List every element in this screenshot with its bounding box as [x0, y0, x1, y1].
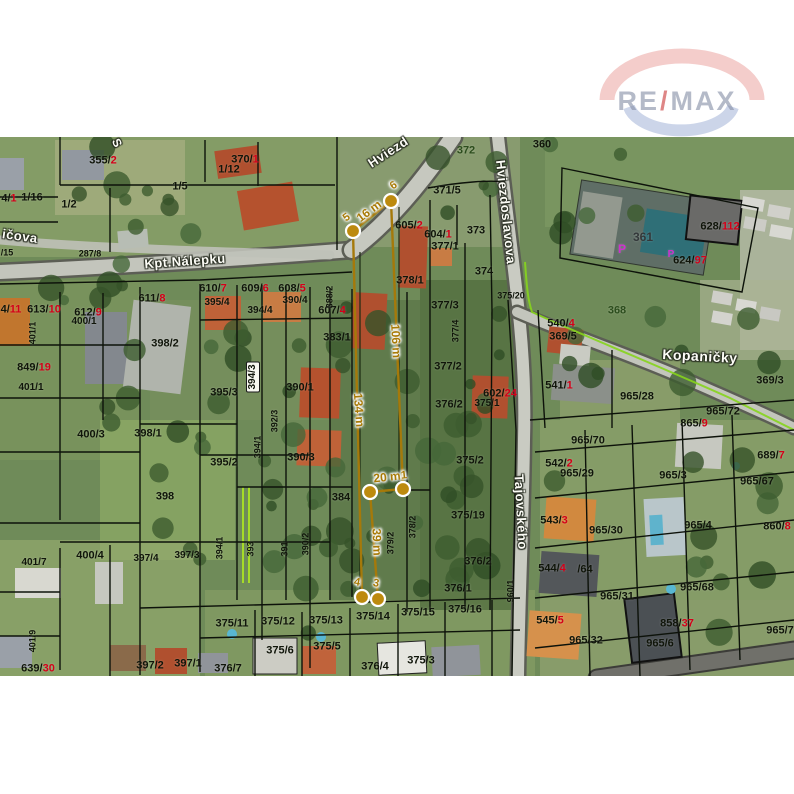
- measure-point: [384, 194, 398, 208]
- remax-watermark: RE/MAX: [570, 46, 794, 142]
- measure-point: [371, 592, 385, 606]
- cadastral-map-screenshot: RE/MAX: [0, 0, 794, 794]
- measure-point: [363, 485, 377, 499]
- remax-wordmark: RE/MAX: [570, 88, 784, 115]
- measure-point: [396, 482, 410, 496]
- wordmark-re: RE: [617, 86, 659, 116]
- wordmark-slash: /: [659, 86, 671, 116]
- map-viewport[interactable]: [0, 137, 794, 676]
- wordmark-max: MAX: [671, 86, 737, 116]
- measure-point: [355, 590, 369, 604]
- measure-point: [346, 224, 360, 238]
